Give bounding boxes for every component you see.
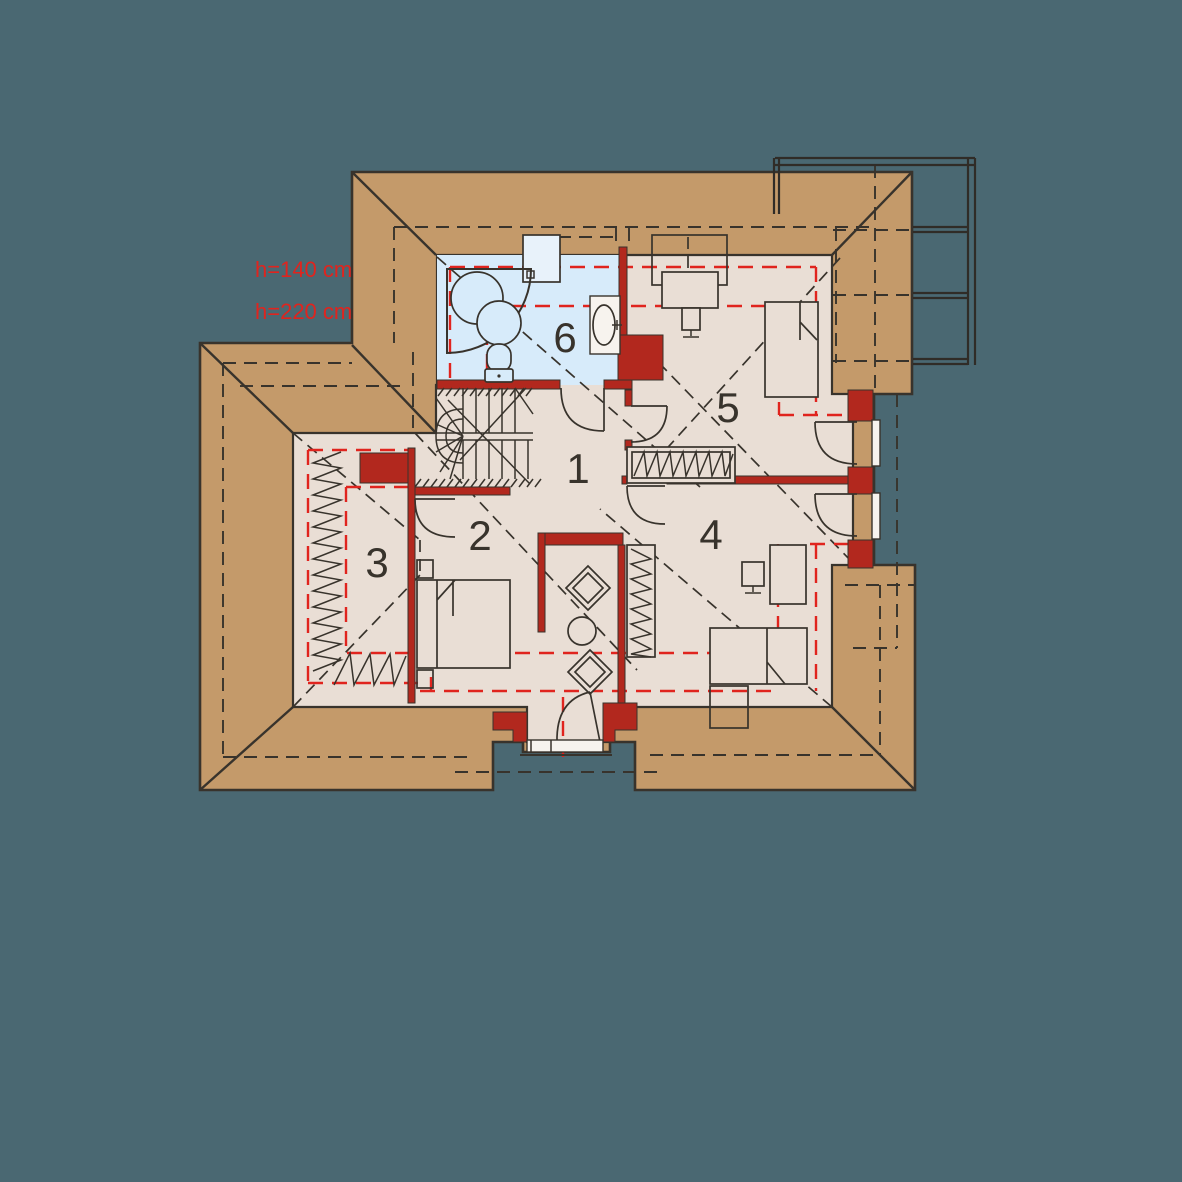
balcony-door-sill-south xyxy=(527,740,603,752)
bed-room4 xyxy=(710,628,807,684)
room-number-6: 6 xyxy=(553,314,576,361)
room-number-4: 4 xyxy=(699,511,722,558)
desk-room4 xyxy=(770,545,806,604)
wall-room3-east xyxy=(408,448,415,703)
hall-wardrobe xyxy=(627,447,735,483)
room-number-3: 3 xyxy=(365,539,388,586)
balcony-door-sill-east xyxy=(872,420,880,466)
wall-corridor-west xyxy=(538,533,545,632)
table-icon xyxy=(568,617,596,645)
room-number-1: 1 xyxy=(566,445,589,492)
wall-east-1 xyxy=(848,390,873,421)
height-labels: h=140 cm h=220 cm xyxy=(255,257,352,324)
computer-room4 xyxy=(742,562,764,586)
wall-east-2 xyxy=(848,467,873,494)
wall-stairs-south xyxy=(413,487,510,495)
washbasin-icon xyxy=(590,296,622,354)
wall-corridor-east xyxy=(618,545,625,707)
height-label-220: h=220 cm xyxy=(255,299,352,324)
room-number-2: 2 xyxy=(468,512,491,559)
bed-room5 xyxy=(765,302,818,397)
chair-room5 xyxy=(682,308,700,330)
room-number-5: 5 xyxy=(716,384,739,431)
attic-floor-plan: 1 2 3 4 5 6 h=140 cm h=220 cm xyxy=(0,0,1182,1182)
wall-room3-block xyxy=(360,453,413,483)
wall-east-3 xyxy=(848,540,873,568)
chimney xyxy=(523,235,560,282)
toilet-icon xyxy=(485,344,513,382)
room2-furniture xyxy=(417,560,510,688)
height-label-140: h=140 cm xyxy=(255,257,352,282)
wall-corridor-north xyxy=(545,533,623,545)
floor-plan-canvas: 1 2 3 4 5 6 h=140 cm h=220 cm xyxy=(0,0,1182,1182)
wall-bathroom-block xyxy=(618,335,663,380)
bed-room2 xyxy=(417,580,510,668)
